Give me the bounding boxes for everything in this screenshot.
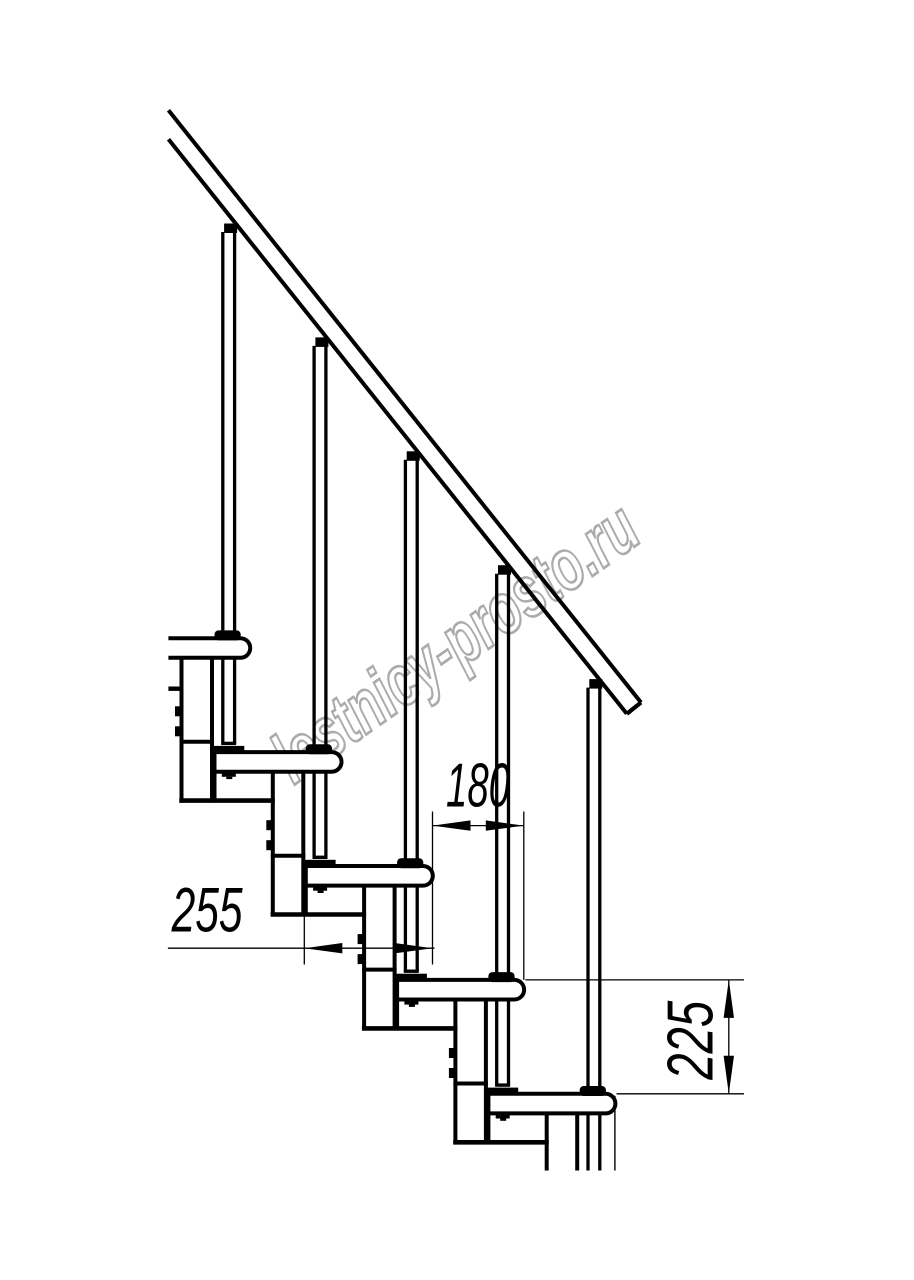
svg-text:225: 225 — [653, 1000, 726, 1080]
svg-text:180: 180 — [446, 752, 510, 821]
svg-text:255: 255 — [171, 876, 243, 946]
